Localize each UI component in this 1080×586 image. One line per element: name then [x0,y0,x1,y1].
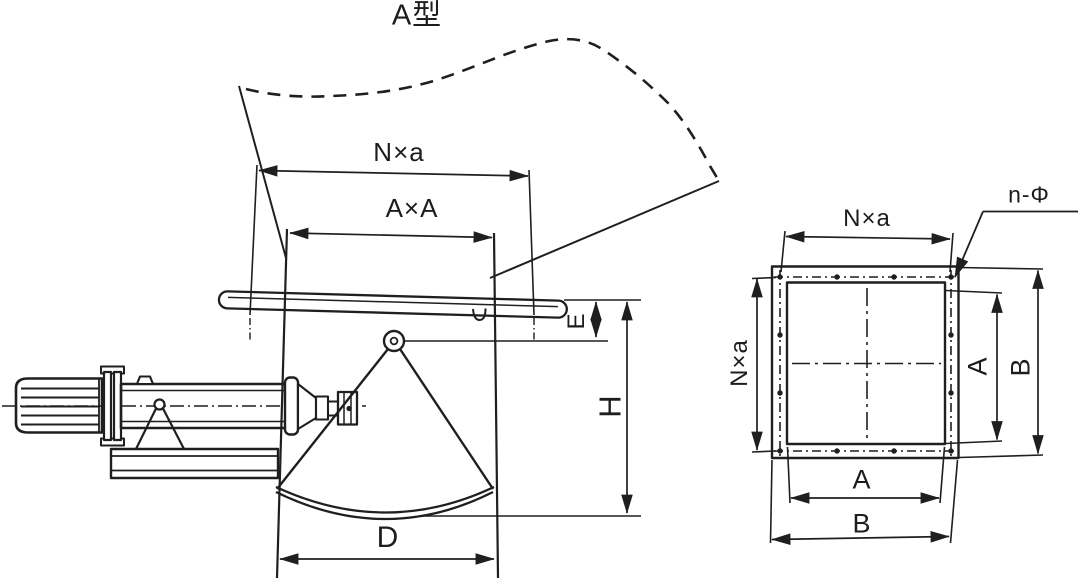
cylinder-body [121,377,288,429]
dim-label-nxa-left-view: N×a [373,139,424,165]
gate-right-edge [400,349,493,489]
dim-label-nxa-top-right-view: N×a [843,207,891,231]
perspective-edge-line [239,86,286,258]
dim-label-a-bottom: A [852,467,871,494]
technical-drawing-sheet: A型 N×a A×A E H D N×a N×a A B A B n-Φ [0,0,1080,586]
sector-gate [276,331,494,519]
dim-label-d: D [377,523,400,553]
bolt-callout-label: n-Φ [1008,184,1050,207]
right-view-flange-plan [752,212,1078,544]
dim-axa-left-view [290,233,492,238]
plate-hole-notch [473,309,486,321]
dim-label-nxa-left-right-view: N×a [728,339,752,387]
top-knob [137,377,153,385]
dim-label-h: H [595,394,626,417]
flange-frame [772,267,959,459]
motor [16,379,102,433]
gate-arc-outer [276,492,493,519]
drawing-title: A型 [392,2,442,31]
left-view-side-elevation [2,39,719,578]
dim-label-b-bottom: B [852,511,871,538]
base-channel [111,449,278,478]
pivot-outer [384,331,404,351]
flange-plate [219,291,567,318]
center-crosshair [792,288,941,441]
rod-clevis [285,378,357,435]
drawing-canvas [0,0,1080,586]
dim-label-b-right: B [1008,357,1035,376]
gate-arc-inner [276,487,494,513]
dim-label-axa: A×A [386,195,439,221]
electric-actuator [2,367,366,479]
hopper-leader-line [490,181,719,278]
hopper-dashed-outline [246,39,719,181]
dim-label-a-right: A [965,356,992,375]
support-bracket [136,400,184,450]
dim-label-e: E [565,312,589,329]
